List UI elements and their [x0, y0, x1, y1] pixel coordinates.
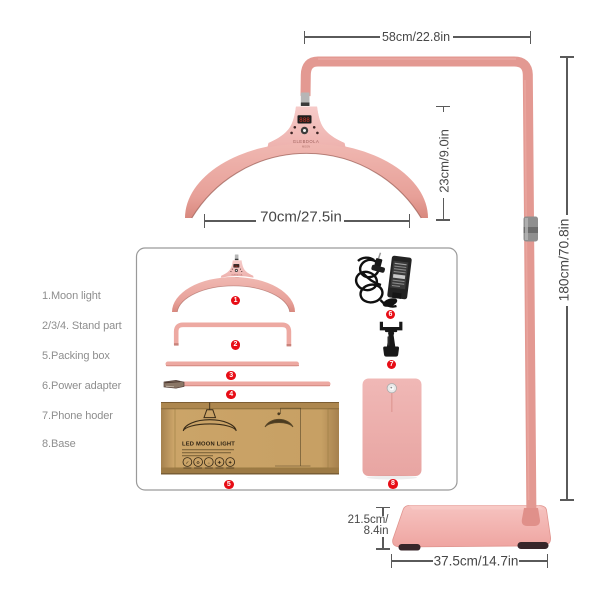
- svg-text:✓: ✓: [186, 460, 190, 465]
- svg-text:LED MOON LIGHT: LED MOON LIGHT: [182, 442, 235, 448]
- svg-text:♻: ♻: [196, 460, 200, 465]
- svg-text:✈: ✈: [218, 460, 222, 465]
- svg-text:✦: ✦: [228, 460, 232, 465]
